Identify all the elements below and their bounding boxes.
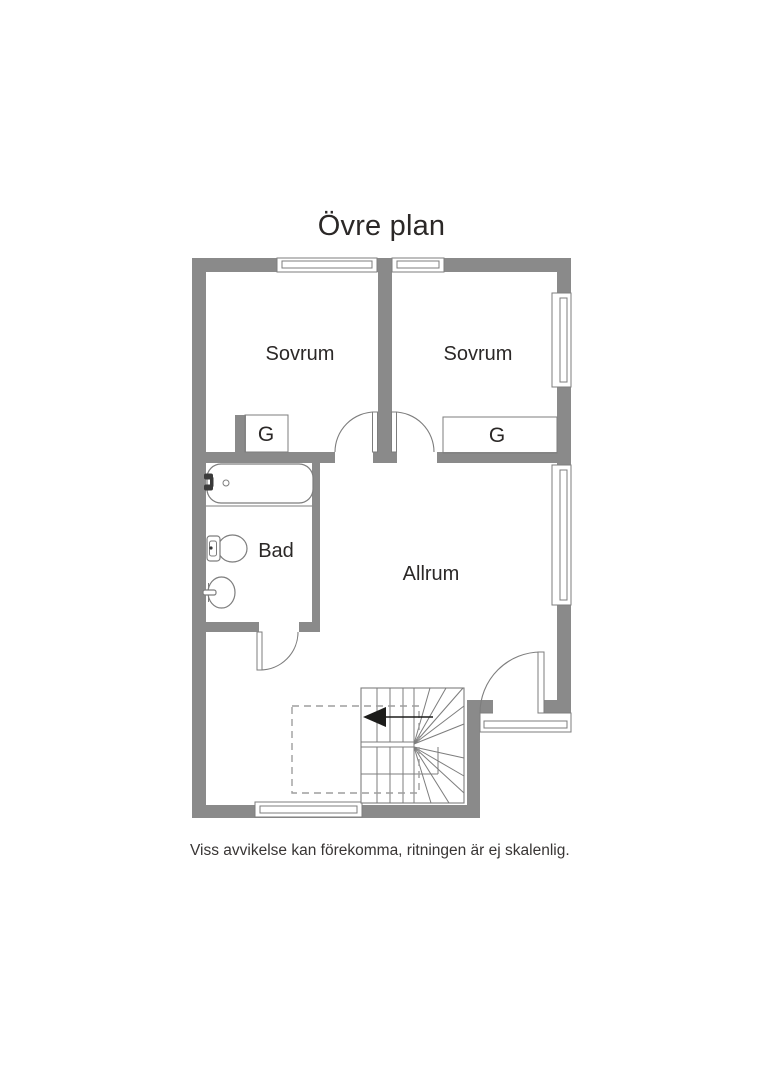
stairs — [361, 688, 464, 803]
sink-icon — [203, 577, 235, 608]
room-label-bathroom: Bad — [258, 540, 294, 562]
closets — [245, 415, 557, 453]
disclaimer-text: Viss avvikelse kan förekomma, ritningen … — [190, 842, 750, 860]
bathtub-icon — [204, 464, 313, 506]
door-bedroom-left — [335, 412, 378, 464]
window-bottom-left — [255, 802, 362, 817]
room-label-closet-right: G — [489, 424, 505, 447]
window-bedroom-left-top — [277, 258, 377, 272]
window-bedroom-right-top — [392, 258, 444, 272]
room-label-bedroom-left: Sovrum — [266, 343, 335, 365]
room-label-closet-left: G — [258, 423, 274, 446]
floor-plan-page: Övre plan — [0, 0, 763, 1080]
window-bedroom-right-east — [552, 293, 571, 387]
window-bottom-right — [480, 713, 571, 732]
door-bedroom-right — [392, 412, 438, 464]
floor-plan-drawing: Sovrum Sovrum G G Bad Allrum — [0, 0, 763, 1080]
room-label-bedroom-right: Sovrum — [444, 343, 513, 365]
window-living-room-east — [552, 465, 571, 605]
toilet-icon — [207, 535, 247, 562]
door-bathroom — [257, 621, 299, 670]
room-label-living-room: Allrum — [403, 563, 460, 585]
